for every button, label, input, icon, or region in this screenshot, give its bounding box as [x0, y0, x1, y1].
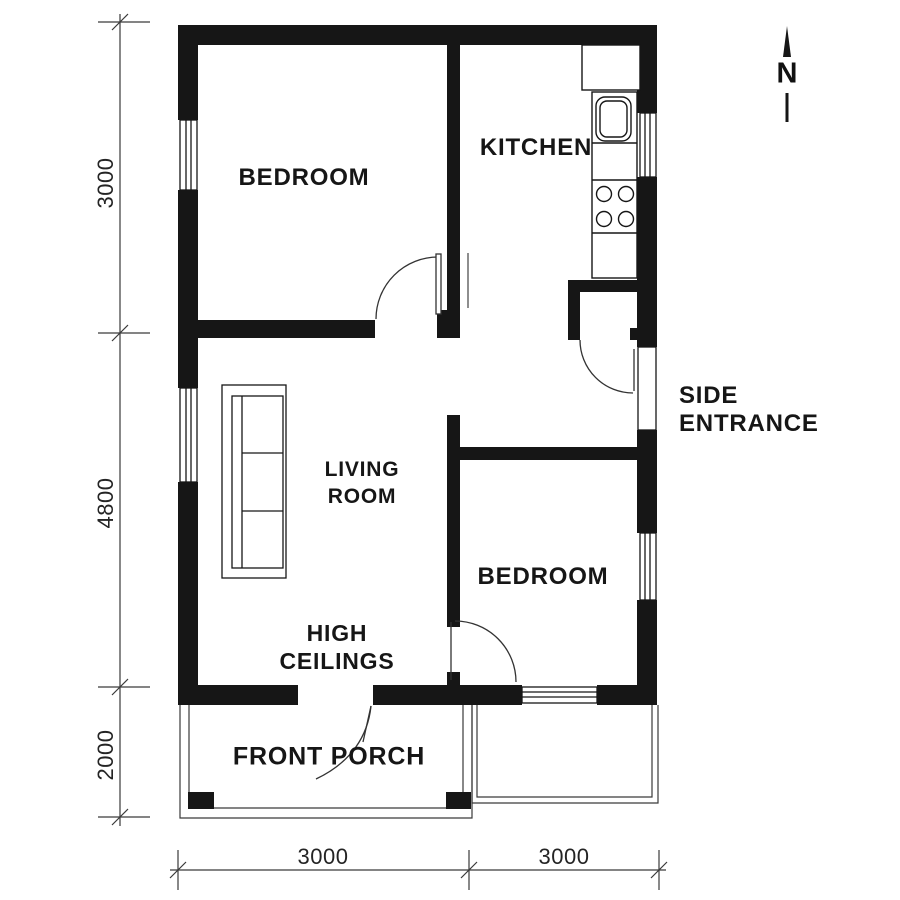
dimension-bottom-3000-a: 3000 — [298, 844, 349, 870]
wall-vestibule-jamb — [630, 328, 642, 340]
sofa-icon — [222, 385, 286, 578]
counter-corner — [582, 45, 640, 90]
wall-interior-vertical — [447, 415, 460, 627]
side-entrance-line1: SIDE — [679, 382, 819, 410]
window-icon — [640, 533, 656, 600]
wall-interior-horizontal — [460, 447, 637, 460]
stove-burner-icon — [597, 212, 612, 227]
window-icon — [640, 113, 656, 177]
wall-interior-horizontal — [198, 320, 375, 338]
wall-interior-vertical — [447, 45, 460, 310]
door-leaf — [363, 706, 371, 742]
stove-burner-icon — [619, 212, 634, 227]
wall-right — [637, 430, 657, 533]
dimension-bottom-3000-b: 3000 — [539, 844, 590, 870]
room-label-bedroom1: BEDROOM — [239, 164, 370, 192]
floor-plan-drawing — [0, 0, 900, 900]
side-patio-outline — [472, 705, 658, 803]
window-icon — [180, 388, 197, 482]
door-swing-icon — [376, 257, 438, 319]
room-label-living: LIVING ROOM — [325, 456, 400, 510]
living-line2: ROOM — [325, 483, 400, 510]
annotation-high-ceilings: HIGH CEILINGS — [279, 619, 394, 675]
high-ceilings-line2: CEILINGS — [279, 647, 394, 675]
room-label-kitchen: KITCHEN — [480, 134, 592, 162]
living-line1: LIVING — [325, 456, 400, 483]
door-swing-icon — [455, 621, 516, 682]
wall-left — [178, 45, 198, 120]
wall-vestibule — [568, 292, 580, 340]
wall-left — [178, 190, 198, 388]
dimension-left-4800: 4800 — [93, 478, 119, 529]
floor-plan: BEDROOM KITCHEN LIVING ROOM BEDROOM SIDE… — [0, 0, 900, 900]
stove-burner-icon — [597, 187, 612, 202]
kitchen-sink-basin — [600, 101, 627, 137]
window-icon — [180, 120, 197, 190]
wall-right — [637, 177, 657, 347]
side-entrance-line2: ENTRANCE — [679, 410, 819, 438]
door-swing-icon — [580, 340, 633, 393]
walls — [178, 25, 657, 705]
porch-post — [188, 792, 214, 809]
high-ceilings-line1: HIGH — [279, 619, 394, 647]
side-door-opening — [638, 347, 656, 430]
wall-left — [178, 482, 198, 685]
wall-right — [637, 600, 657, 685]
window-icon — [522, 687, 597, 703]
north-label: N — [777, 58, 798, 91]
wall-bottom — [597, 685, 657, 705]
annotation-side-entrance: SIDE ENTRANCE — [679, 382, 819, 438]
windows — [180, 113, 656, 703]
porch-post — [446, 792, 471, 809]
wall-vestibule — [568, 280, 657, 292]
door-leaf — [436, 254, 441, 314]
dimension-left-3000: 3000 — [93, 158, 119, 209]
wall-stub — [447, 672, 460, 686]
stove-burner-icon — [619, 187, 634, 202]
wall-top — [178, 25, 657, 45]
room-label-bedroom2: BEDROOM — [478, 563, 609, 591]
wall-bottom — [373, 685, 522, 705]
room-label-front-porch: FRONT PORCH — [233, 743, 425, 772]
wall-bottom — [178, 685, 298, 705]
dimension-left-2000: 2000 — [93, 730, 119, 781]
